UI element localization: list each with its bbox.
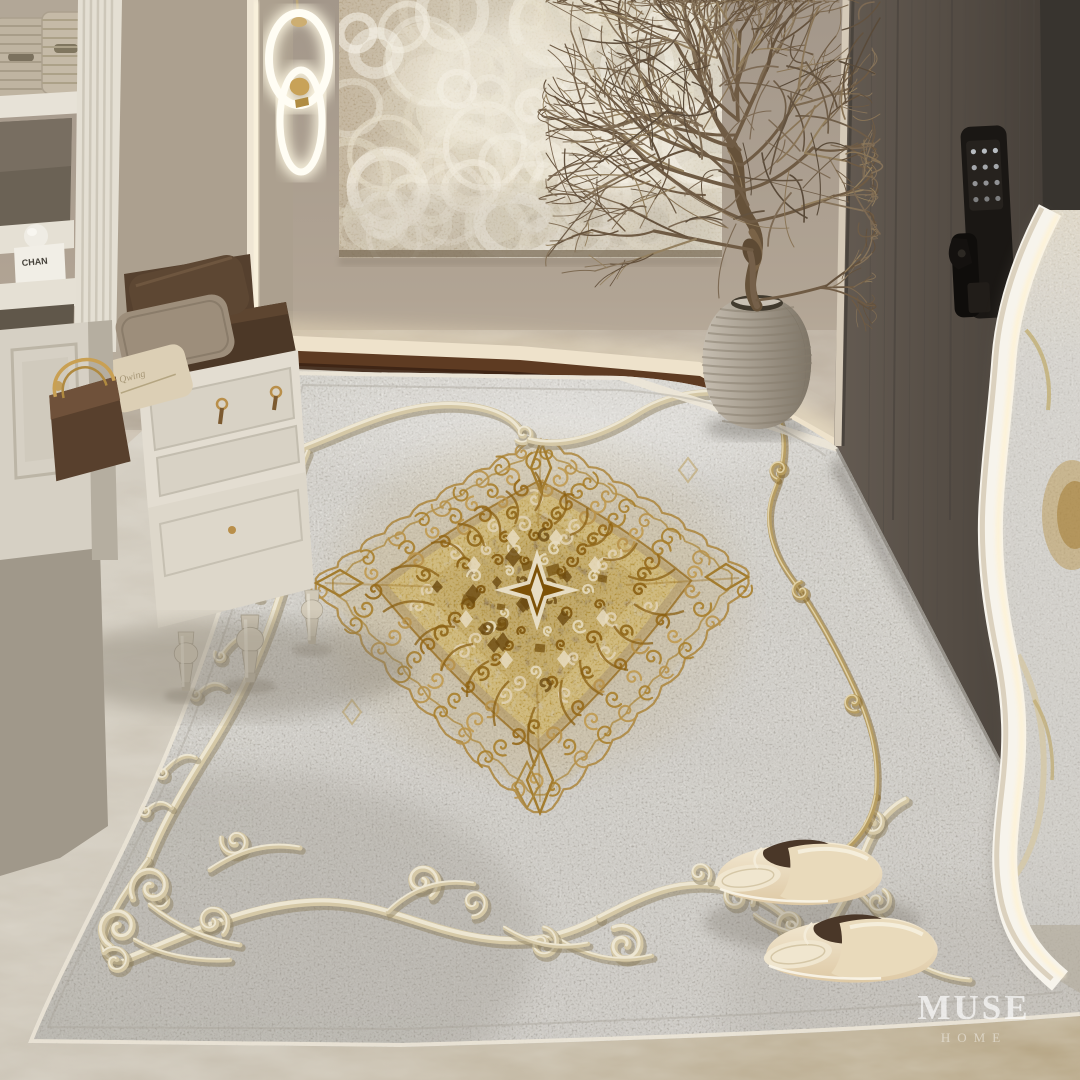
svg-text:HOME: HOME: [941, 1030, 1007, 1045]
svg-text:MUSE: MUSE: [917, 988, 1030, 1027]
